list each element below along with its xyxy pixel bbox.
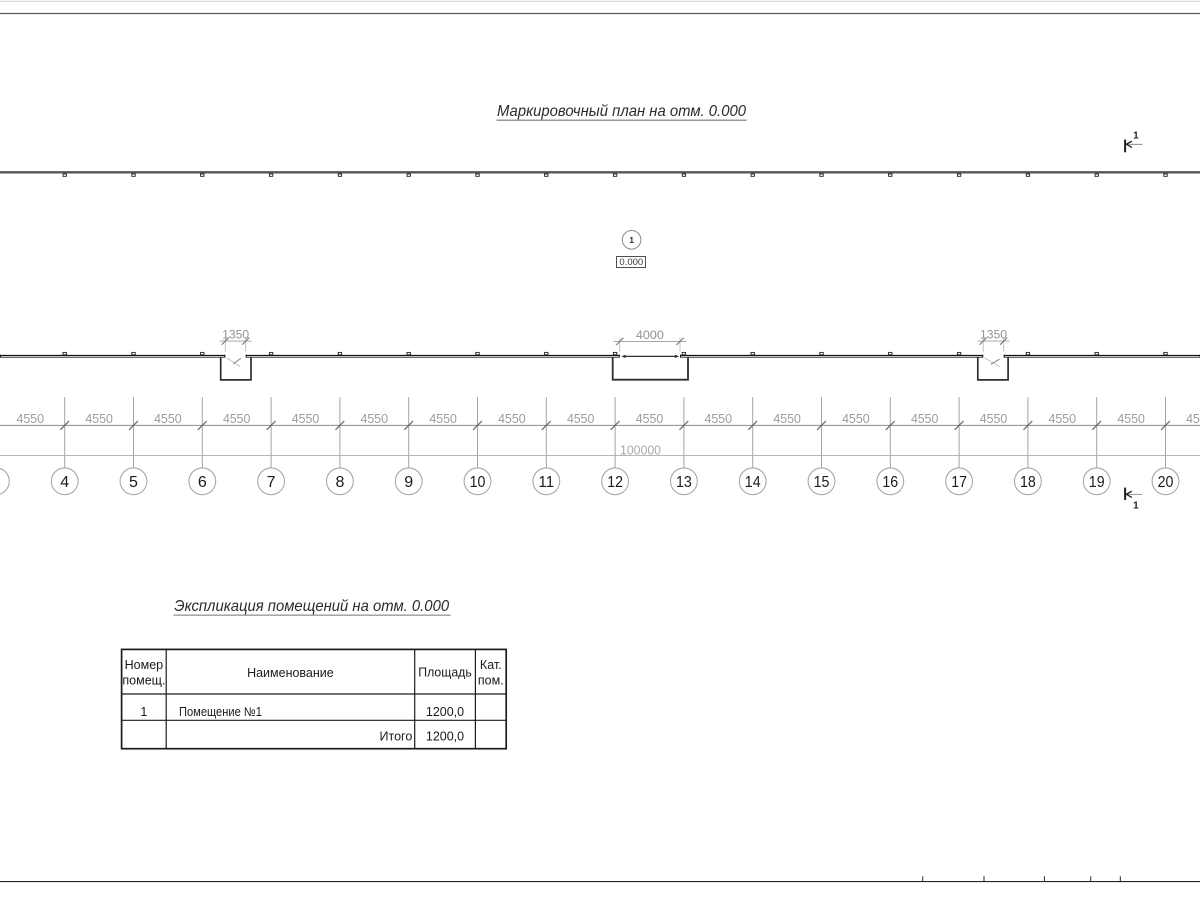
svg-text:100000: 100000: [620, 442, 661, 457]
svg-text:4550: 4550: [773, 411, 801, 426]
svg-text:17: 17: [951, 474, 967, 491]
svg-text:Помещение №1: Помещение №1: [179, 705, 262, 719]
svg-text:15: 15: [814, 474, 830, 491]
svg-text:4550: 4550: [85, 411, 113, 426]
svg-text:6: 6: [198, 474, 207, 491]
svg-text:20: 20: [1158, 474, 1174, 491]
svg-text:4550: 4550: [1049, 411, 1077, 426]
svg-text:5: 5: [129, 474, 138, 491]
svg-text:16: 16: [882, 474, 898, 491]
svg-text:18: 18: [1020, 474, 1036, 491]
svg-text:Экспликация помещений на отм.: Экспликация помещений на отм. 0.000: [174, 598, 449, 615]
svg-text:4550: 4550: [911, 411, 939, 426]
svg-text:11: 11: [538, 474, 554, 491]
svg-text:4550: 4550: [705, 411, 733, 426]
svg-text:4550: 4550: [17, 411, 45, 426]
svg-text:4550: 4550: [1117, 411, 1145, 426]
svg-text:4550: 4550: [1186, 411, 1200, 426]
svg-text:Кат.: Кат.: [480, 658, 502, 672]
svg-text:1: 1: [1133, 501, 1139, 512]
svg-text:1: 1: [140, 705, 147, 719]
svg-text:14: 14: [745, 474, 761, 491]
svg-text:1: 1: [629, 236, 634, 245]
svg-text:1: 1: [1133, 131, 1139, 142]
svg-text:1350: 1350: [222, 328, 249, 342]
svg-text:10: 10: [470, 474, 486, 491]
svg-text:4550: 4550: [429, 411, 457, 426]
svg-text:9: 9: [404, 474, 413, 491]
svg-text:7: 7: [267, 474, 276, 491]
svg-text:пом.: пом.: [478, 673, 504, 687]
svg-text:Итого: Итого: [380, 730, 413, 744]
svg-text:4: 4: [60, 474, 69, 491]
svg-text:4550: 4550: [842, 411, 870, 426]
svg-text:4550: 4550: [498, 411, 526, 426]
svg-text:Наименование: Наименование: [247, 666, 334, 680]
svg-text:4550: 4550: [567, 411, 595, 426]
svg-text:4550: 4550: [636, 411, 664, 426]
svg-text:4550: 4550: [223, 411, 251, 426]
svg-text:4550: 4550: [292, 411, 320, 426]
svg-text:4000: 4000: [636, 328, 664, 342]
svg-text:13: 13: [676, 474, 692, 491]
svg-text:8: 8: [335, 474, 344, 491]
svg-text:19: 19: [1089, 474, 1105, 491]
svg-text:Номер: Номер: [125, 658, 164, 672]
svg-text:помещ.: помещ.: [122, 673, 165, 687]
svg-text:4550: 4550: [154, 411, 182, 426]
svg-text:1200,0: 1200,0: [426, 705, 464, 719]
svg-text:Площадь: Площадь: [418, 666, 472, 680]
svg-text:1200,0: 1200,0: [426, 730, 464, 744]
svg-text:4550: 4550: [361, 411, 389, 426]
svg-text:1350: 1350: [980, 328, 1007, 342]
svg-text:4550: 4550: [980, 411, 1008, 426]
svg-text:0.000: 0.000: [619, 257, 643, 268]
svg-text:Маркировочный план на отм. 0.0: Маркировочный план на отм. 0.000: [497, 103, 746, 120]
svg-text:12: 12: [607, 474, 623, 491]
